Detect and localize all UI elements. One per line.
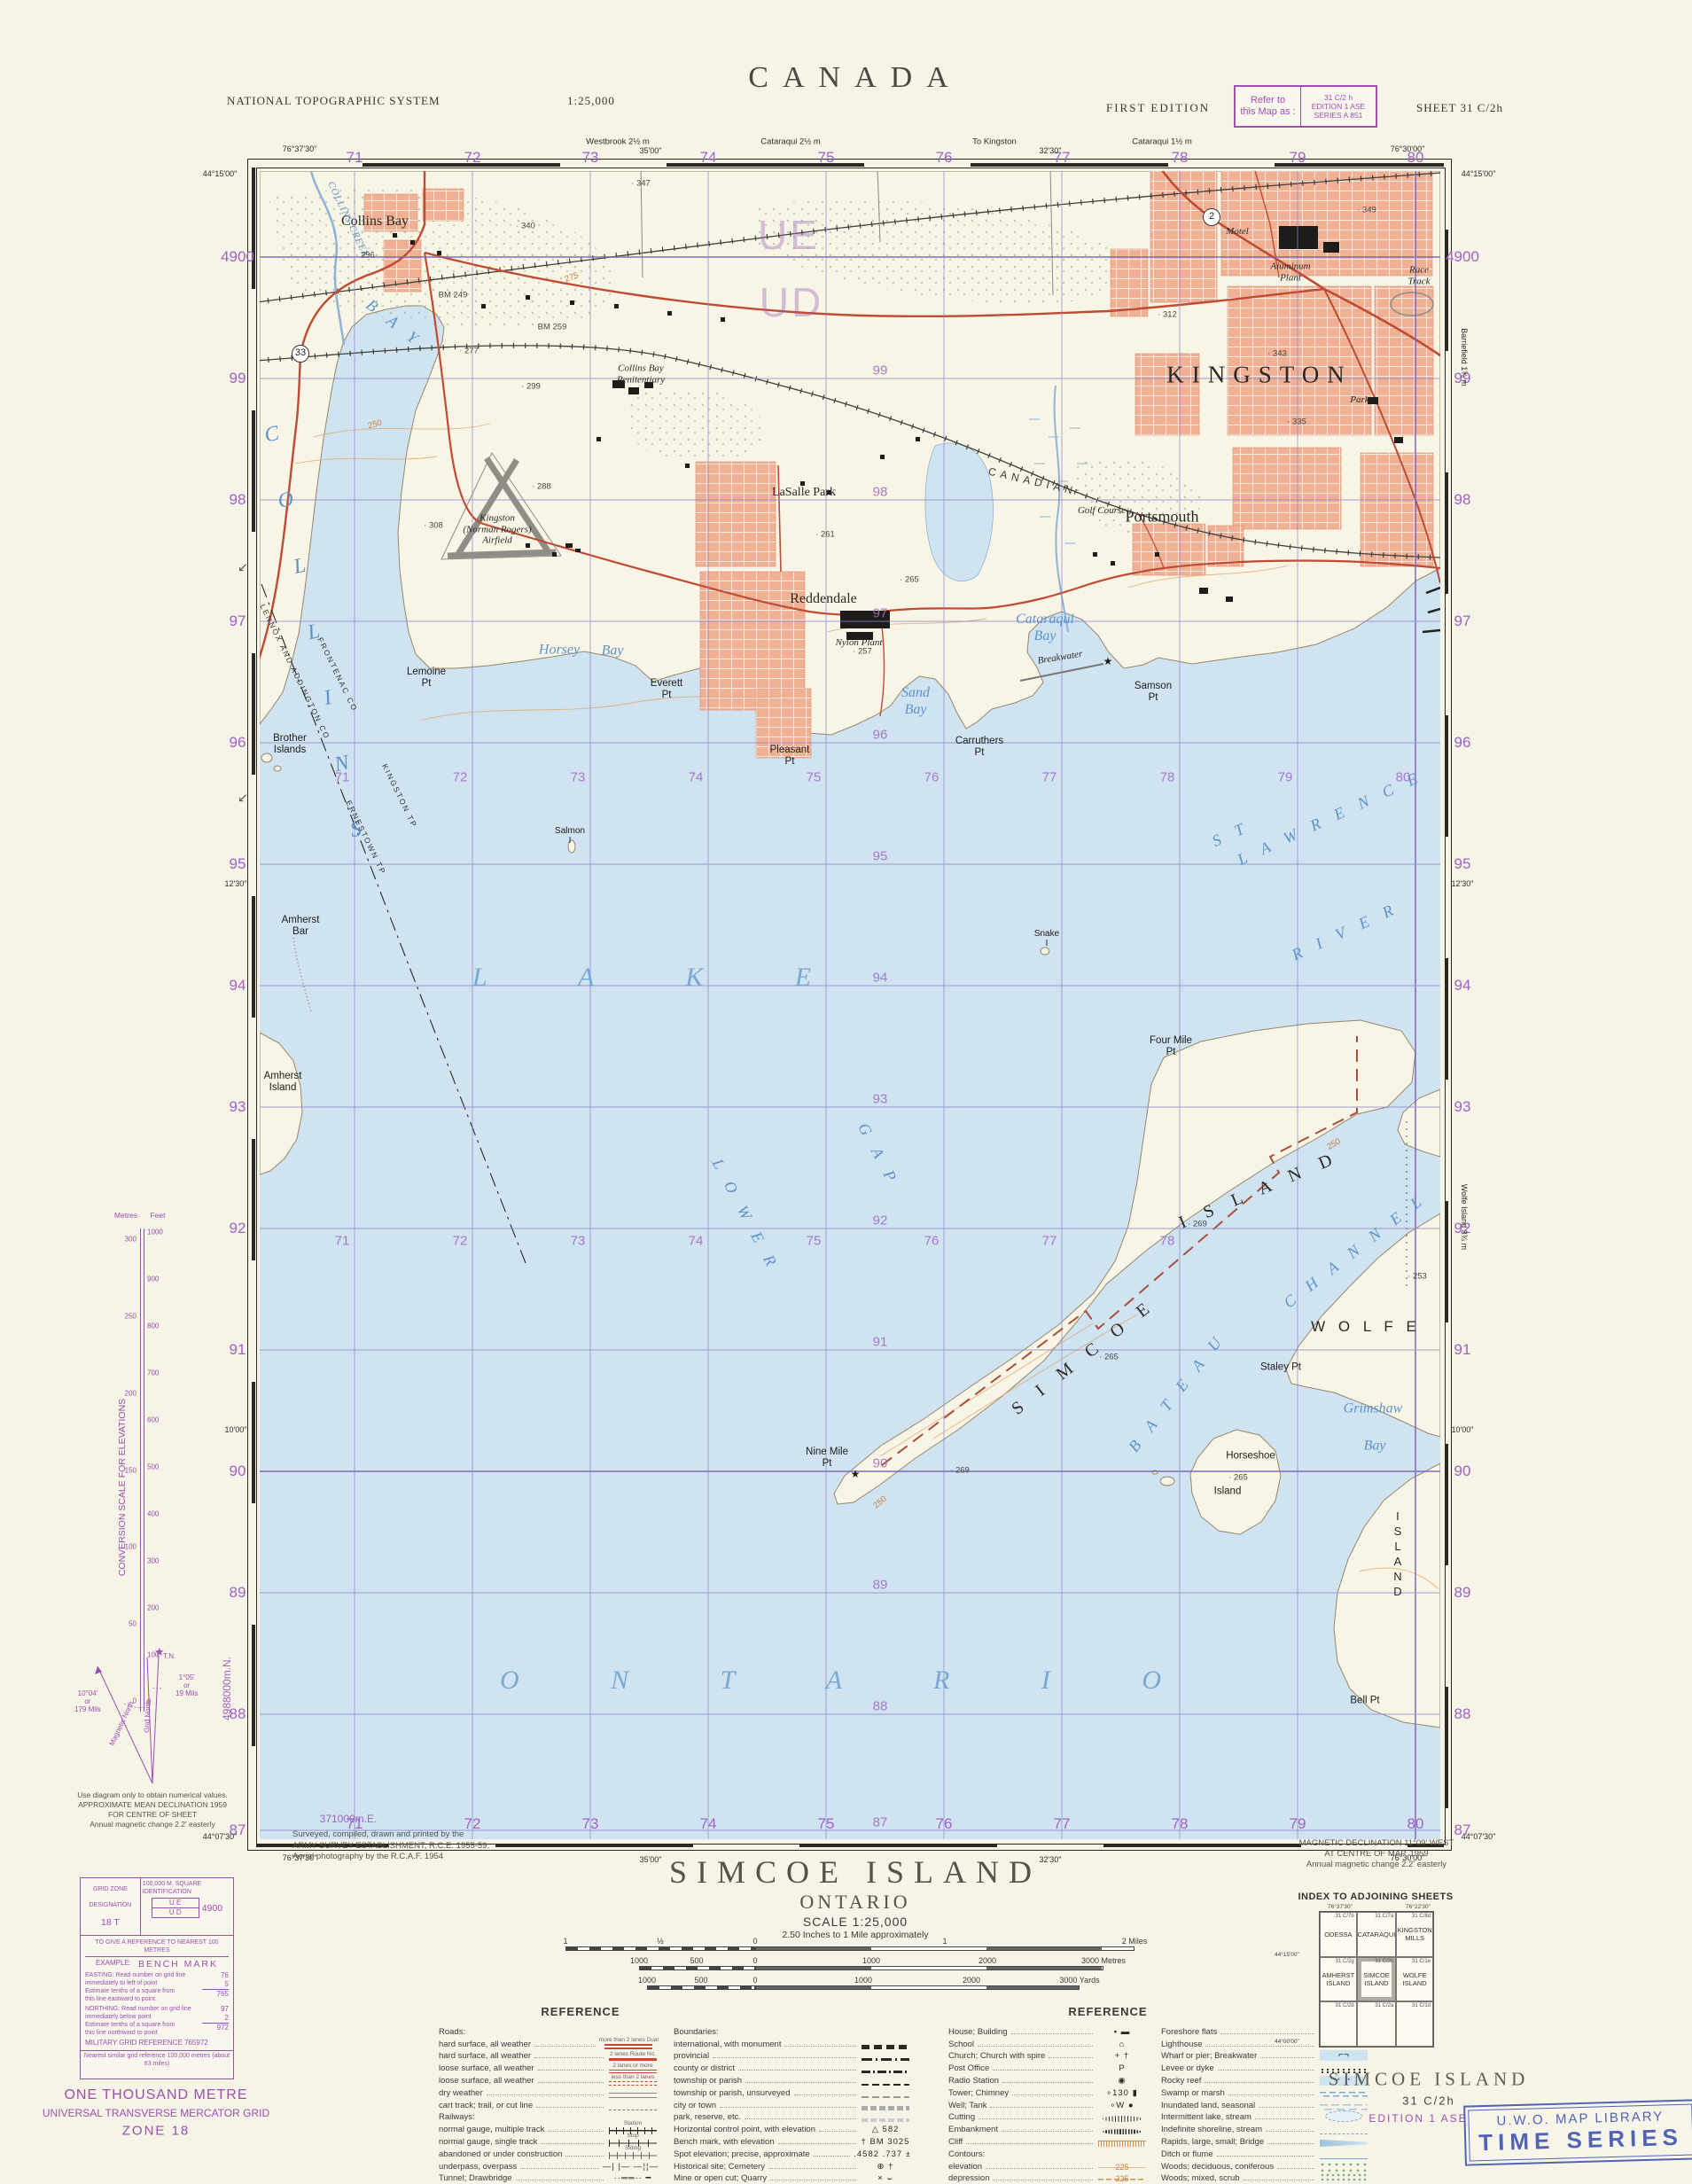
map-label: · 299 <box>521 382 541 392</box>
map-label: Bay <box>1364 1438 1386 1455</box>
utm-grid-title-2: UNIVERSAL TRANSVERSE MERCATOR GRID <box>43 2107 269 2119</box>
conversion-unit-metres: Metres <box>114 1211 137 1220</box>
grid-number: 96 <box>230 734 246 752</box>
metres-bar-right <box>755 1966 1103 1970</box>
map-label: KINGSTON TP <box>380 762 419 830</box>
map-label: Motel <box>1226 226 1249 238</box>
refer-line2: this Map as : <box>1236 106 1300 118</box>
map-label: Nine Mile Pt <box>806 1447 848 1470</box>
map-label: L O W E R <box>708 1156 784 1275</box>
refer-sheet: 31 C/2 h <box>1301 93 1376 102</box>
map-label: UD <box>760 278 823 326</box>
legend-symbol: ⌐¬ <box>1320 2050 1368 2061</box>
square-ud: U D <box>152 1908 199 1917</box>
index-sheet-id: 31 C/8d <box>1412 1914 1431 1919</box>
map-label: W O L F E <box>1311 1318 1421 1336</box>
map-label: Snake I <box>1034 929 1059 948</box>
map-label: Park <box>1350 394 1368 406</box>
index-sheet-id: 31 C/2h <box>1375 1959 1393 1964</box>
utm-example-label: EXAMPLE: <box>96 1959 131 1969</box>
legend-column-boundaries: Boundaries:international, with monumentp… <box>674 2024 911 2184</box>
conversion-unit-feet: Feet <box>150 1211 165 1220</box>
legend-row: provincial <box>674 2049 911 2062</box>
legend-symbol <box>1098 2141 1146 2147</box>
grid-number: 94 <box>230 977 246 994</box>
utm-northing-1: 97 <box>202 2005 229 2014</box>
map-label: · 288 <box>532 482 551 492</box>
map-label: Sand Bay <box>901 684 930 718</box>
feet-tick-label: 200 <box>147 1604 159 1612</box>
sheet-name-bottom: SIMCOE ISLAND <box>1329 2069 1530 2091</box>
refer-box: Refer tothis Map as : 31 C/2 hEDITION 1 … <box>1234 85 1377 128</box>
map-label: L A K E <box>472 963 854 993</box>
index-sheet-name: KINGSTON MILLS <box>1398 1926 1432 1942</box>
scale-bar-label: 0 <box>752 1956 757 1965</box>
map-label: BM 259 <box>538 323 567 332</box>
map-label: L A W R E N C E <box>1235 767 1426 870</box>
feet-tick-label: 400 <box>147 1510 159 1518</box>
map-label: B A T E A U <box>1125 1330 1229 1456</box>
magnetic-declination-note: MAGNETIC DECLINATION 11°09' WEST AT CENT… <box>1299 1838 1454 1870</box>
feet-tick-label: 1000 <box>147 1228 163 1236</box>
utm-northing-2: 2 <box>202 2014 229 2024</box>
utm-easting-text: EASTING: Read number on grid line immedi… <box>85 1971 202 2003</box>
refer-edition: EDITION 1 ASE <box>1301 102 1376 111</box>
scale-bar-label: 1000 <box>862 1956 880 1965</box>
map-label: 250 <box>367 418 383 432</box>
feet-tick-label: 900 <box>147 1275 159 1283</box>
map-label: Race Track <box>1407 265 1430 287</box>
country-title: CANADA <box>748 61 962 95</box>
corner-lon-tr: 76°30'00" <box>1391 144 1425 153</box>
index-cell: 31 C/7bODESSA <box>1320 1912 1357 1957</box>
lon-tick-top-1: 35'00" <box>640 146 662 155</box>
utm-northing-3: 972 <box>202 2024 229 2032</box>
true-north-label: T.N. <box>163 1652 175 1660</box>
declination-diagram: ★ T.N. 10°04' or 179 Mils 1°05' or 19 Mi… <box>71 1650 230 1828</box>
index-cell: 31 C/1d <box>1396 2001 1433 2047</box>
scale-bar-label: 500 <box>694 1976 707 1985</box>
index-sheet-name: CATARAQUI <box>1358 1930 1396 1938</box>
index-sheet-name: ODESSA <box>1324 1930 1352 1938</box>
grid-number: 96 <box>1454 734 1471 752</box>
lon-tick-bottom-1: 35'00" <box>640 1855 662 1864</box>
index-sheet-name: WOLFE ISLAND <box>1403 1971 1427 1987</box>
map-label: 2 <box>1203 208 1220 226</box>
utm-easting-1: 76 <box>202 1971 229 1980</box>
map-label: · 269 <box>950 1466 970 1476</box>
grid-north-label: Grid North <box>143 1700 152 1733</box>
map-label: · 265 <box>1099 1353 1119 1362</box>
edition-label: FIRST EDITION <box>1106 101 1210 115</box>
map-label: Collins Bay <box>341 214 409 230</box>
corner-lat-bl: 44°07'30" <box>203 1832 238 1841</box>
feet-tick-label: 800 <box>147 1322 159 1330</box>
miles-bar-left <box>565 1946 755 1951</box>
margin-arrow-icon: ↙ <box>238 560 248 575</box>
utm-easting-2: 5 <box>202 1980 229 1990</box>
legend-symbol <box>862 2058 909 2061</box>
map-label: · 340 <box>516 222 535 231</box>
legend-row: Cutting <box>948 2110 1148 2123</box>
graticule-band-right <box>1445 168 1448 1843</box>
legend-symbol <box>1320 2140 1368 2147</box>
map-label: Horsey <box>539 642 580 659</box>
grid-number: 97 <box>230 612 246 630</box>
map-canvas: C O L L I N SB A YCOLLINS CREEKHorseyBay… <box>260 171 1440 1839</box>
easting-full-label: 371000m.E. <box>320 1813 378 1825</box>
legend-row: county or district <box>674 2061 911 2073</box>
refer-series: SERIES A 851 <box>1301 111 1376 120</box>
yards-bar-right <box>755 1985 1080 1990</box>
map-label: · 261 <box>815 530 835 540</box>
legend-row: Roads: <box>439 2024 659 2037</box>
scale-bar-label: 3000 Yards <box>1059 1976 1099 1985</box>
lat-tick-left-2: 10'00" <box>225 1425 247 1434</box>
library-stamp: U.W.O. MAP LIBRARY TIME SERIES <box>1463 2099 1692 2165</box>
legend-symbol <box>862 2084 909 2086</box>
margin-arrow-icon: ↙ <box>238 791 248 806</box>
legend-symbol <box>862 2096 909 2098</box>
index-sheet-id: 31 C/7b <box>1336 1914 1354 1919</box>
map-scale-line: SCALE 1:25,000 <box>803 1915 908 1929</box>
map-label: · 349 <box>1357 206 1376 215</box>
index-sheet-id: 31 C/2a <box>1375 2003 1393 2008</box>
legend-row: hard surface, all weather2 lanes Route N… <box>439 2049 659 2062</box>
legend-row: Boundaries: <box>674 2024 911 2037</box>
legend-column-hydro: Foreshore flatsLighthouse★Wharf or pier;… <box>1161 2024 1369 2184</box>
road-destination-note: Westbrook 2½ m <box>586 137 650 147</box>
header-scale: 1:25,000 <box>567 94 615 108</box>
map-label: Golf Course <box>1078 505 1126 517</box>
scale-bar-label: 0 <box>752 1937 757 1946</box>
index-sheet-name: SIMCOE ISLAND <box>1363 1971 1390 1987</box>
scale-bar-label: 1 <box>563 1937 567 1946</box>
map-label: Salmon I <box>555 826 585 846</box>
scale-bar-label: 0 <box>752 1976 757 1985</box>
feet-tick-label: 600 <box>147 1416 159 1424</box>
feet-tick-label: 700 <box>147 1369 159 1377</box>
legend-symbol <box>1325 2110 1362 2122</box>
utm-northing-text: NORTHING: Read number on grid line immed… <box>85 2005 202 2037</box>
scale-bar-label: ½ <box>657 1937 664 1946</box>
map-label: · 253 <box>1407 1272 1427 1282</box>
nts-system-label: NATIONAL TOPOGRAPHIC SYSTEM <box>227 94 441 108</box>
grid-number: 92 <box>230 1220 246 1237</box>
index-sheet-id: 31 C/1e <box>1412 1959 1431 1964</box>
graticule-band-left <box>252 168 255 1843</box>
grid-number: 90 <box>230 1462 246 1480</box>
map-label: ★ <box>851 1468 861 1480</box>
grid-number: 97 <box>1454 612 1471 630</box>
map-scale-note: 2.50 Inches to 1 Mile approximately <box>782 1930 928 1940</box>
scale-bar-label: 1 <box>942 1937 947 1946</box>
index-coord-tr: 76°22'30" <box>1406 1904 1431 1910</box>
map-label: · 269 <box>1188 1220 1207 1229</box>
map-title: SIMCOE ISLAND <box>669 1853 1041 1891</box>
legend-symbol <box>862 2071 909 2073</box>
lat-tick-left-1: 12'30" <box>225 879 247 888</box>
map-label: Carruthers Pt <box>955 736 1003 759</box>
legend-symbol <box>862 2045 909 2049</box>
map-label: Horseshoe <box>1226 1451 1275 1462</box>
map-label: · 265 <box>900 575 919 585</box>
legend-symbol <box>609 2070 657 2073</box>
magnetic-declination-value: 10°04' or 179 Mils <box>74 1689 101 1713</box>
metres-tick-label: 150 <box>125 1467 136 1475</box>
legend-row: dry weather <box>439 2086 659 2098</box>
map-label: · 308 <box>424 521 443 531</box>
index-coord-ml: 44°15'00" <box>1275 1952 1299 1958</box>
road-destination-note: Cataraqui 2½ m <box>760 137 821 147</box>
map-label: Amherst Island <box>264 1071 302 1094</box>
metres-tick-label: 50 <box>129 1620 136 1628</box>
map-label: O N T A R I O <box>500 1665 1204 1696</box>
map-label: 275 <box>564 270 581 285</box>
legend-symbol <box>604 2044 652 2049</box>
map-label: · 343 <box>1267 349 1287 359</box>
grid-number: 98 <box>1454 491 1471 509</box>
index-sheet-id: 31 C/2b <box>1336 2003 1354 2008</box>
map-label: · 347 <box>631 179 651 189</box>
map-label: B A Y <box>363 296 426 352</box>
map-label: · 277 <box>459 347 479 356</box>
index-coord-bl: 44°00'00" <box>1275 2039 1299 2045</box>
metres-tick-label: 200 <box>125 1390 136 1398</box>
map-label: C H A N N E L <box>1280 1189 1430 1313</box>
map-label: Breakwater <box>1037 649 1083 667</box>
grid-number: 93 <box>1454 1098 1471 1116</box>
map-label: · 257 <box>853 647 872 657</box>
map-label: Pleasant Pt <box>770 745 810 768</box>
map-label: KINGSTON <box>1166 362 1353 389</box>
index-coord-tl: 76°37'30" <box>1328 1904 1353 1910</box>
map-label: Aluminum Plant <box>1270 261 1310 284</box>
legend-row: township or parish <box>674 2073 911 2086</box>
lon-tick-top-2: 32'30" <box>1040 146 1062 155</box>
legend-row: Rapids, large, small; Bridge <box>1161 2134 1369 2147</box>
map-label: 33 <box>292 345 309 363</box>
scale-bar-label: 3000 Metres <box>1081 1956 1126 1965</box>
map-label: 250 <box>871 1494 888 1511</box>
grid-zone-value: 18 T <box>101 1917 120 1928</box>
index-sheet-id: 31 C/7a <box>1375 1914 1393 1919</box>
road-destination-note: To Kingston <box>972 137 1017 147</box>
legend-symbol <box>609 2093 657 2098</box>
map-label: · 335 <box>1287 417 1306 427</box>
utm-reference-box: GRID ZONE DESIGNATION 18 T 100,000 M. SQ… <box>80 1877 234 2079</box>
map-label: Everett Pt <box>651 678 682 701</box>
legend-row: township or parish, unsurveyed <box>674 2086 911 2098</box>
road-destination-note: Cataraqui 1½ m <box>1132 137 1192 147</box>
utm-easting-3: 765 <box>202 1990 229 1999</box>
map-label: Four Mile Pt <box>1150 1035 1192 1058</box>
corner-lon-tl: 76°37'30" <box>283 144 317 153</box>
index-title: INDEX TO ADJOINING SHEETS <box>1298 1891 1453 1902</box>
utm-ref-instruction: TO GIVE A REFERENCE TO NEAREST 100 METRE… <box>85 1938 229 1957</box>
legend-symbol <box>609 2110 657 2110</box>
lat-tick-right-2: 10'00" <box>1452 1425 1474 1434</box>
index-sheet-name: AMHERST ISLAND <box>1322 1971 1355 1987</box>
metres-bar-left <box>639 1966 755 1970</box>
map-label: Amherst Bar <box>282 915 320 938</box>
map-label: CANADIAN <box>987 465 1079 498</box>
sheet-id-bottom: 31 C/2h <box>1402 2094 1455 2108</box>
map-label: R I V E R <box>1289 899 1401 964</box>
map-label: Island <box>1214 1486 1242 1498</box>
map-label: Staley Pt <box>1260 1362 1301 1374</box>
military-grid-reference: MILITARY GRID REFERENCE 765972 <box>85 2039 229 2047</box>
scale-bar-label: 1000 <box>854 1976 872 1985</box>
scale-bar-label: 1000 <box>630 1956 648 1965</box>
map-label: S I M C O E <box>1008 1295 1159 1420</box>
refer-line1: Refer to <box>1236 95 1300 106</box>
scale-bar-label: 1000 <box>638 1976 656 1985</box>
legend-column-structures: House; Building▪ ▬School⌂Church; Church … <box>948 2024 1148 2184</box>
utm-example-value: BENCH MARK <box>138 1959 218 1969</box>
map-label: Portsmouth <box>1125 508 1198 526</box>
edition-bottom: EDITION 1 ASE <box>1368 2112 1467 2125</box>
lon-tick-bottom-2: 32'30" <box>1040 1855 1062 1864</box>
legend-column-roads: Roads:hard surface, all weathermore than… <box>439 2024 659 2184</box>
map-label: G A P <box>854 1119 902 1189</box>
map-label: Kingston (Norman Rogers) Airfield <box>463 512 531 546</box>
grid-number: 91 <box>230 1341 246 1359</box>
index-grid: 31 C/7bODESSA31 C/7aCATARAQUI31 C/8dKING… <box>1319 1911 1434 2047</box>
map-label: · 265 <box>1228 1473 1248 1483</box>
index-cell: 31 C/2b <box>1320 2001 1357 2047</box>
scale-bar-label: 2 Miles <box>1122 1937 1148 1946</box>
map-label: LaSalle Park <box>772 486 836 500</box>
map-label: · 312 <box>1158 310 1177 320</box>
grid-number: 90 <box>1454 1462 1471 1480</box>
utm-grid-title-1: ONE THOUSAND METRE <box>64 2087 247 2103</box>
metres-tick-label: 100 <box>125 1543 136 1551</box>
sheet-number: SHEET 31 C/2h <box>1416 101 1503 115</box>
grid-number: 95 <box>1454 855 1471 873</box>
map-label: BM 249 <box>439 291 468 300</box>
map-label: Bay <box>602 643 624 659</box>
square-id-title: 100,000 M. SQUARE IDENTIFICATION <box>143 1880 231 1896</box>
legend-symbol <box>862 2106 909 2110</box>
legend-row: Intermittent lake, stream <box>1161 2110 1369 2123</box>
graticule-band-top <box>256 163 1444 167</box>
corner-lat-tr: 44°15'00" <box>1462 169 1496 178</box>
grid-number: 98 <box>230 491 246 509</box>
feet-tick-label: 500 <box>147 1463 159 1471</box>
index-cell: 31 C/7aCATARAQUI <box>1357 1912 1397 1957</box>
grid-zone-label-1: GRID ZONE <box>93 1885 128 1893</box>
legend-row: Wharf or pier; Breakwater⌐¬ <box>1161 2049 1369 2062</box>
legend-row: cart track; trail, or cut line <box>439 2098 659 2110</box>
map-label: UE <box>758 211 820 259</box>
legend-row: hard surface, all weathermore than 2 lan… <box>439 2037 659 2049</box>
reference-heading-left: REFERENCE <box>541 2005 620 2018</box>
map-label: Reddendale <box>790 591 857 607</box>
legend-row: international, with monument <box>674 2037 911 2049</box>
grid-number: 99 <box>230 370 246 387</box>
conversion-ruler <box>140 1228 144 1712</box>
legend-row: loose surface, all weather2 lanes or mor… <box>439 2061 659 2073</box>
map-label: Collins Bay Penitentiary <box>617 363 665 386</box>
scale-bar-label: 2000 <box>963 1976 980 1985</box>
index-sheet-id: 31 C/1d <box>1412 2003 1431 2008</box>
map-label: ★ <box>1103 655 1113 667</box>
corner-lat-tl: 44°15'00" <box>203 169 238 178</box>
survey-credits: Surveyed, compiled, drawn and printed by… <box>292 1829 489 1863</box>
index-cell: 31 C/8dKINGSTON MILLS <box>1396 1912 1433 1957</box>
legend-row: Cliff <box>948 2134 1148 2147</box>
grid-number: 93 <box>230 1098 246 1116</box>
grid-number: 91 <box>1454 1341 1471 1359</box>
yards-bar-left <box>647 1985 755 1990</box>
legend-row: loose surface, all weatherless than 2 la… <box>439 2073 659 2086</box>
grid-number: 89 <box>230 1584 246 1602</box>
road-destination-note: Barriefield 1¾ m <box>1460 328 1469 386</box>
stamp-line2: TIME SERIES <box>1478 2124 1683 2157</box>
feet-tick-label: 300 <box>147 1557 159 1565</box>
map-label: Bell Pt <box>1350 1696 1379 1707</box>
map-sheet: NATIONAL TOPOGRAPHIC SYSTEM 1:25,000 CAN… <box>0 0 1692 2184</box>
road-destination-note: Wolfe Island 3¾ m <box>1460 1184 1469 1250</box>
index-cell: 31 C/2a <box>1357 2001 1397 2047</box>
index-sheet-id: 31 C/2g <box>1336 1959 1354 1964</box>
legend-symbol <box>609 2058 657 2061</box>
grid-declination-value: 1°05' or 19 Mils <box>175 1673 198 1697</box>
square-northing: 4900 <box>202 1903 222 1914</box>
utm-nearest-note: Nearest similar grid reference 100,000 m… <box>81 2050 233 2069</box>
grid-number: 95 <box>230 855 246 873</box>
map-label: Grimshaw <box>1344 1400 1403 1417</box>
metres-tick-label: 250 <box>125 1313 136 1321</box>
map-province: ONTARIO <box>799 1891 910 1914</box>
scale-bar-label: 2000 <box>979 1956 996 1965</box>
miles-bar-right <box>755 1946 1134 1951</box>
metres-tick-label: 300 <box>125 1236 136 1244</box>
scale-bar-label: 500 <box>690 1956 703 1965</box>
grid-number: 88 <box>1454 1705 1471 1723</box>
lat-tick-right-1: 12'30" <box>1452 879 1474 888</box>
utm-grid-title-3: ZONE 18 <box>122 2124 191 2139</box>
map-label: Cataraqui Bay <box>1016 611 1074 644</box>
map-label: · 296 <box>355 251 375 261</box>
grid-number: 89 <box>1454 1584 1471 1602</box>
reference-heading-right: REFERENCE <box>1068 2005 1147 2018</box>
legend-row: city or town <box>674 2098 911 2110</box>
map-label: I S L A N D <box>1393 1509 1401 1599</box>
map-labels-layer: C O L L I N SB A YCOLLINS CREEKHorseyBay… <box>260 171 1440 1839</box>
map-label: Brother Islands <box>273 733 307 756</box>
index-cell: 31 C/1eWOLFE ISLAND <box>1396 1957 1433 2002</box>
grid-number: 94 <box>1454 977 1471 994</box>
map-label: Samson Pt <box>1134 681 1172 704</box>
map-label: Lemoine Pt <box>407 667 446 690</box>
square-ue: U E <box>152 1899 199 1908</box>
declination-caption: Use diagram only to obtain numerical val… <box>55 1790 250 1829</box>
corner-lat-br: 44°07'30" <box>1462 1832 1496 1841</box>
index-cell: 31 C/2gAMHERST ISLAND <box>1320 1957 1357 2002</box>
index-cell: 31 C/2hSIMCOE ISLAND <box>1357 1957 1397 2002</box>
grid-zone-label-2: DESIGNATION <box>90 1901 132 1909</box>
